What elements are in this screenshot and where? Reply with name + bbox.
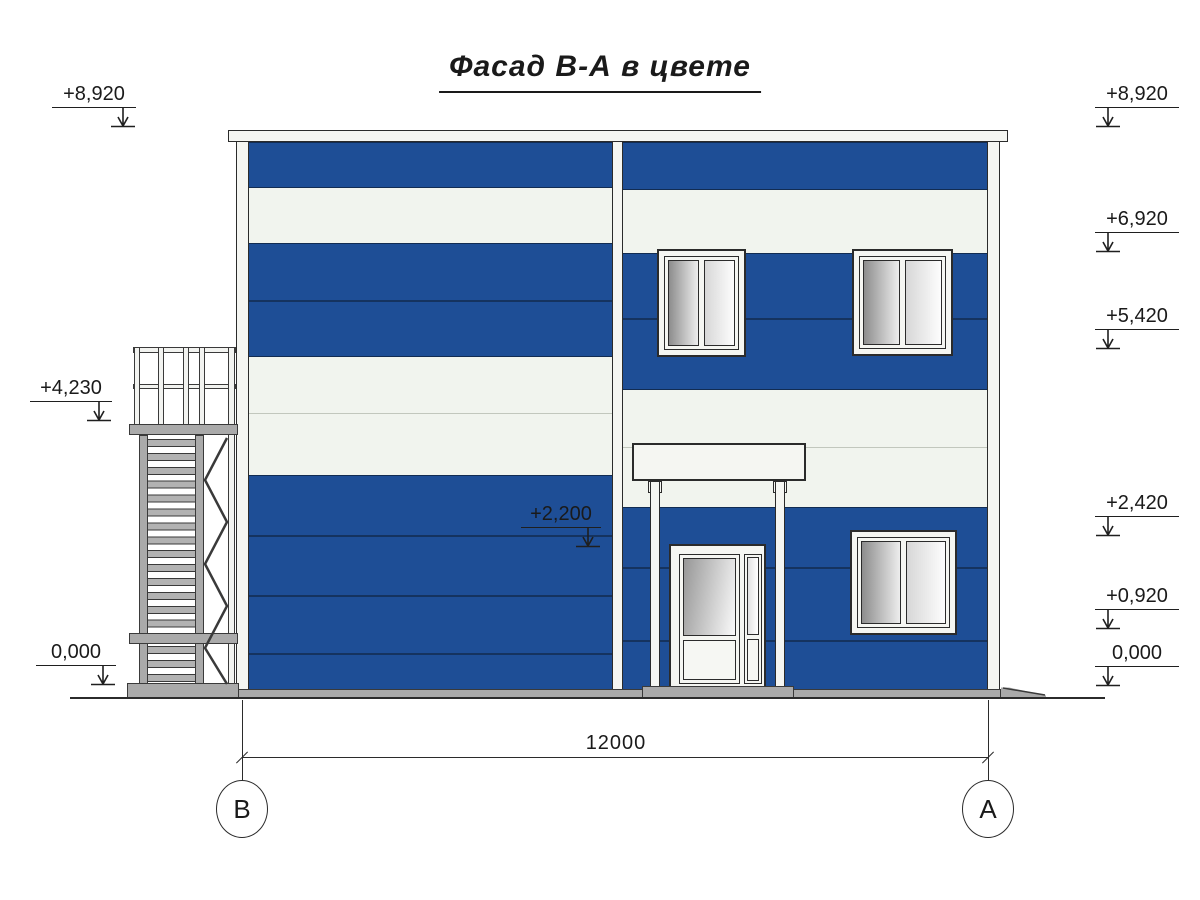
level-arrow-icon [1093,329,1123,355]
level-arrow-icon [108,107,138,133]
level-label: +0,920 [1095,584,1179,610]
level-marker-right-0920: +0,920 [1095,584,1179,610]
level-label: 0,000 [36,640,116,666]
level-marker-left-8920: +8,920 [52,82,136,108]
axis-bubble-right: А [962,780,1014,838]
level-label: +8,920 [52,82,136,108]
axis-bubble-left: В [216,780,268,838]
level-arrow-icon [1093,107,1123,133]
axis-line-left [242,700,243,782]
level-arrow-icon [1093,609,1123,635]
dimension-label: 12000 [566,732,666,755]
level-arrow-icon [1093,232,1123,258]
level-marker-right-6920: +6,920 [1095,207,1179,233]
level-label: +8,920 [1095,82,1179,108]
level-marker-right-8920: +8,920 [1095,82,1179,108]
level-marker-left-0000: 0,000 [36,640,116,666]
level-arrow-icon [84,401,114,427]
truss-diagonals [0,0,1200,900]
level-arrow-icon [1093,666,1123,692]
level-marker-2200: +2,200 [521,502,601,528]
level-arrow-icon [88,665,118,691]
level-marker-right-2420: +2,420 [1095,491,1179,517]
level-label: 0,000 [1095,641,1179,667]
level-label: +2,420 [1095,491,1179,517]
dimension-line [242,757,988,758]
facade-drawing: Фасад В-А в цвете [0,0,1200,900]
level-marker-left-4230: +4,230 [30,376,112,402]
level-label: +2,200 [521,502,601,528]
level-marker-right-0000: 0,000 [1095,641,1179,667]
level-marker-right-5420: +5,420 [1095,304,1179,330]
level-label: +4,230 [30,376,112,402]
level-arrow-icon [573,527,603,553]
axis-line-right [988,700,989,782]
ground-line [70,697,1105,699]
level-label: +5,420 [1095,304,1179,330]
level-label: +6,920 [1095,207,1179,233]
level-arrow-icon [1093,516,1123,542]
